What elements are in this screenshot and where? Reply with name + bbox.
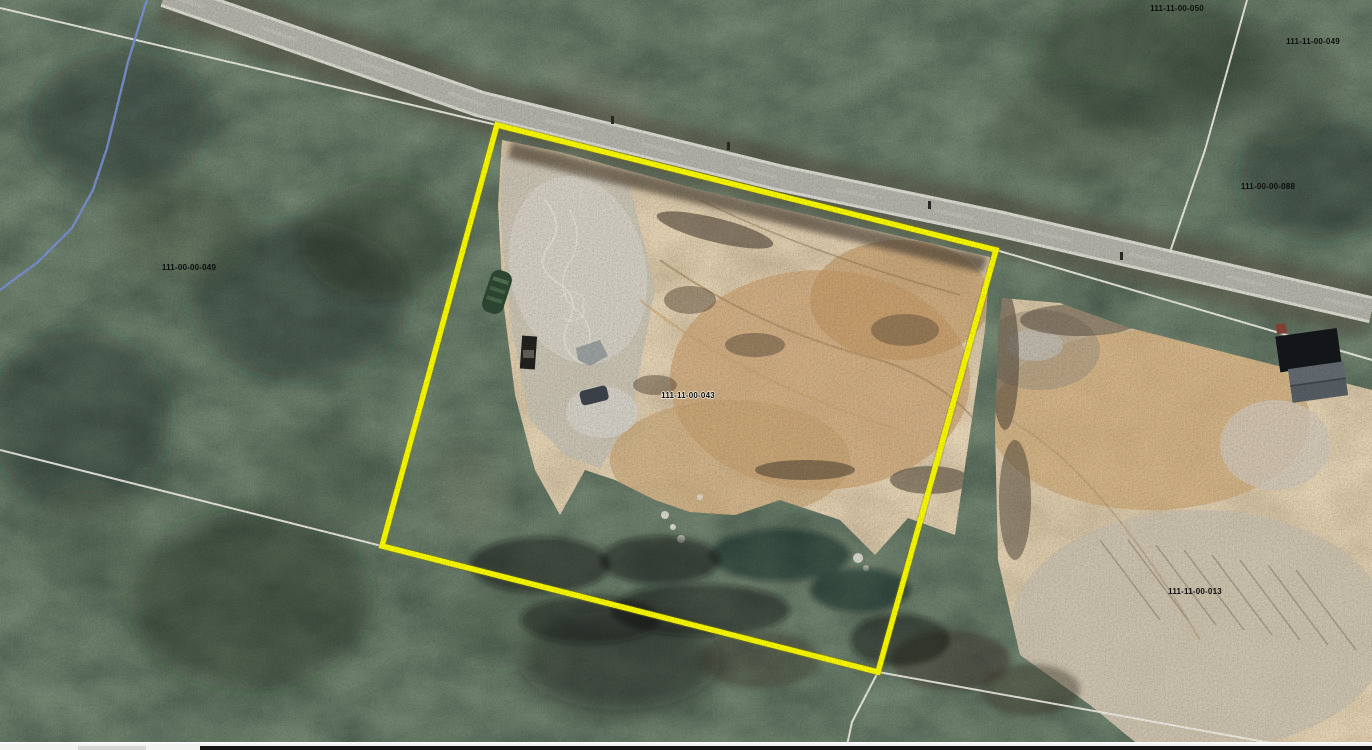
parcel-label-049-west: 111-00-00-049 (162, 263, 217, 272)
parcel-label-050: 111-11-00-050 (1150, 4, 1204, 13)
bottom-bar-gray-segment (78, 746, 146, 750)
bottom-bar (0, 742, 1372, 750)
bottom-bar-black-segment (200, 746, 1372, 750)
aerial-map[interactable]: 111-11-00-050 111-11-00-049 111-00-00-08… (0, 0, 1372, 750)
parcel-label-049-east: 111-11-00-049 (1286, 37, 1340, 46)
grain-overlay (0, 0, 1372, 742)
map-viewport[interactable]: 111-11-00-050 111-11-00-049 111-00-00-08… (0, 0, 1372, 750)
parcel-label-088: 111-00-00-088 (1241, 182, 1296, 191)
parcel-label-013: 111-11-00-013 (1168, 587, 1222, 596)
parcel-label-043-selected: 111-11-00-043 (661, 391, 715, 400)
